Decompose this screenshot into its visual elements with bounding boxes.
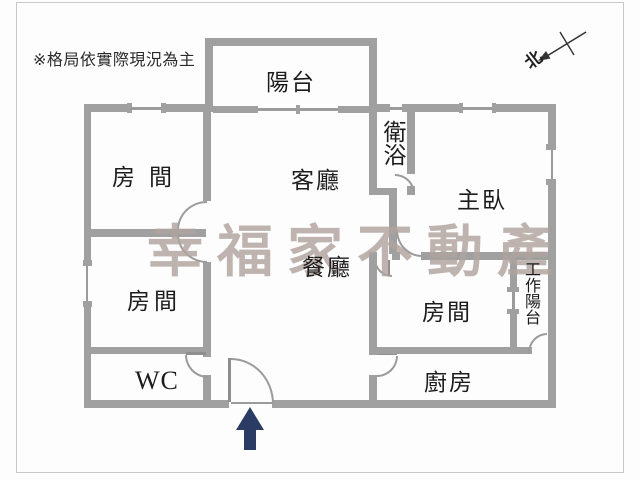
window <box>512 292 515 310</box>
wall <box>369 375 377 400</box>
wall <box>407 112 415 174</box>
room-label-bathroom: 衛浴 <box>380 120 405 166</box>
room-label-kitchen: 廚房 <box>424 363 474 397</box>
wall <box>402 104 462 112</box>
wall <box>338 106 369 113</box>
window <box>86 266 88 303</box>
room-label-top-left: 房間 <box>112 158 186 192</box>
wall <box>272 400 552 408</box>
window <box>462 107 495 110</box>
wall <box>510 313 517 354</box>
floor-plan: 幸福家不動產 陽台 房間 客廳 衛浴 主臥 餐廳 房間 房間 工作陽台 廚房 W… <box>0 0 640 480</box>
wall <box>369 38 377 195</box>
wall <box>84 306 91 408</box>
room-label-bottom-left: 房間 <box>127 282 181 316</box>
room-label-bottom-right: 房間 <box>422 293 472 327</box>
wall <box>203 112 211 201</box>
wall <box>213 106 258 113</box>
room-label-balcony: 陽台 <box>266 63 316 97</box>
wall <box>495 104 556 112</box>
wall <box>377 104 390 112</box>
room-label-master: 主臥 <box>457 181 507 215</box>
wall <box>373 347 532 354</box>
window <box>390 107 402 110</box>
entry-arrow-icon <box>236 407 264 451</box>
window <box>130 107 164 110</box>
window <box>551 150 553 180</box>
disclaimer-text: ※格局依實際現況為主 <box>33 46 195 70</box>
room-label-dining: 餐廳 <box>302 248 352 282</box>
wall <box>203 375 211 402</box>
room-label-living: 客廳 <box>291 161 341 195</box>
wall <box>164 104 205 112</box>
window-cap <box>296 105 300 114</box>
room-label-work-balcony: 工作陽台 <box>521 261 539 325</box>
wall <box>205 38 377 46</box>
wall <box>205 38 213 112</box>
watermark-text: 幸福家不動產 <box>147 207 567 288</box>
wall <box>84 104 91 262</box>
room-label-wc: WC <box>135 366 179 396</box>
